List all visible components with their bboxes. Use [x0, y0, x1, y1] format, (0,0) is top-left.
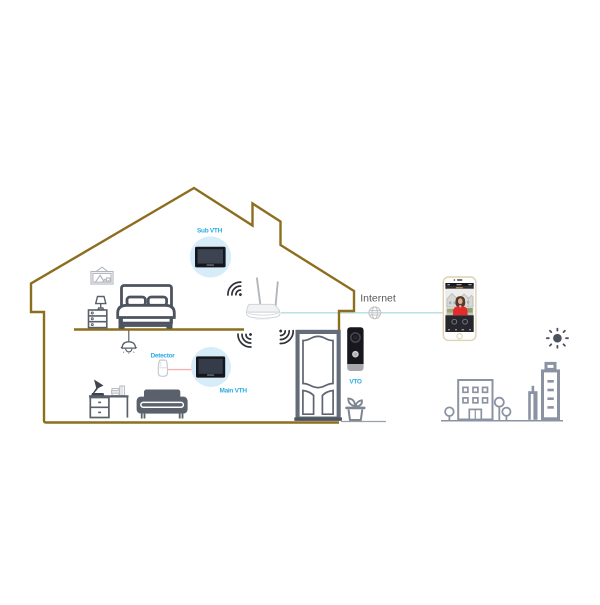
svg-text:VTO: VTO: [349, 379, 362, 386]
svg-text:Detector: Detector: [151, 353, 176, 360]
svg-text:Sub VTH: Sub VTH: [197, 228, 223, 235]
svg-text:Main VTH: Main VTH: [220, 388, 248, 395]
svg-text:Internet: Internet: [360, 293, 396, 305]
